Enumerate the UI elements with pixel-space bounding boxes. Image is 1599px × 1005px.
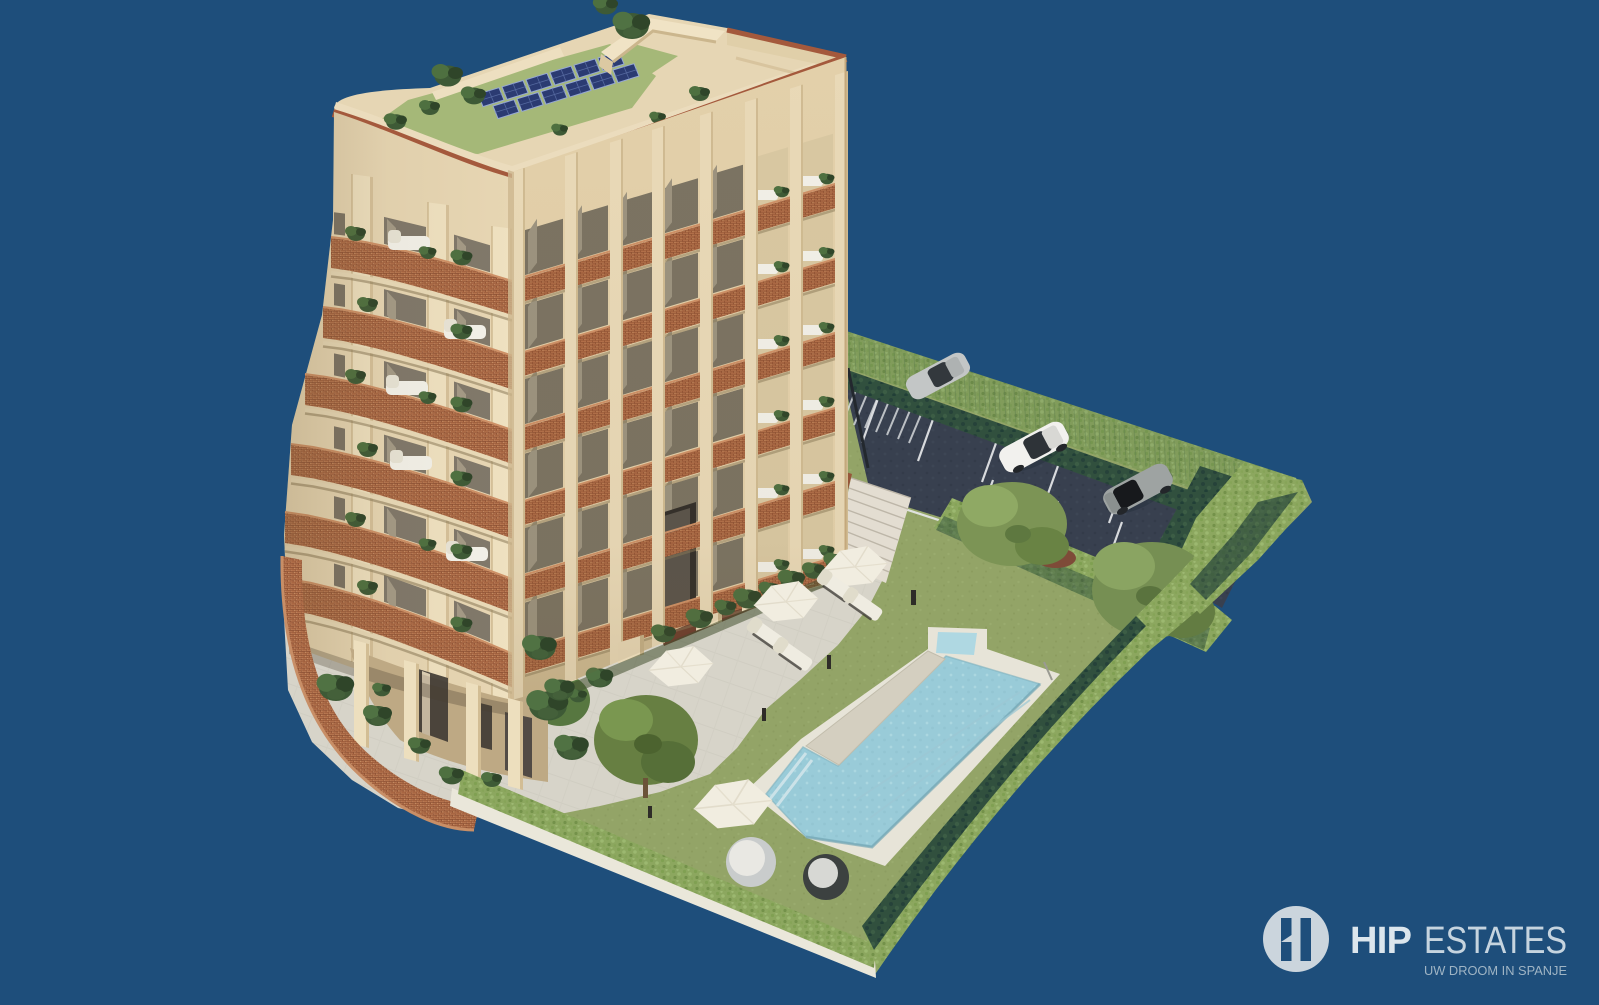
svg-text:UW DROOM IN SPANJE: UW DROOM IN SPANJE: [1424, 964, 1567, 978]
svg-text:HIP: HIP: [1350, 920, 1412, 962]
svg-text:ESTATES: ESTATES: [1424, 920, 1567, 962]
